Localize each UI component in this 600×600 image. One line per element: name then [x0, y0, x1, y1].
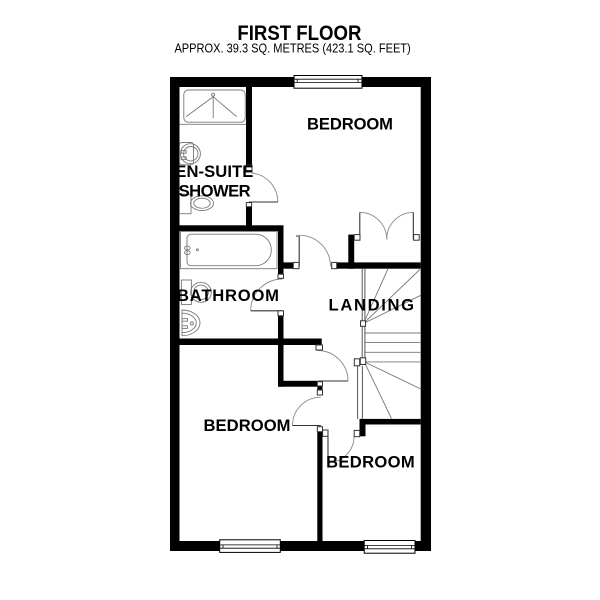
svg-text:SHOWER: SHOWER [179, 181, 251, 200]
svg-text:APPROX. 39.3 SQ. METRES (423.1: APPROX. 39.3 SQ. METRES (423.1 SQ. FEET) [174, 41, 410, 55]
svg-text:EN-SUITE: EN-SUITE [175, 162, 253, 181]
svg-text:LANDING: LANDING [329, 296, 415, 315]
svg-text:BEDROOM: BEDROOM [326, 452, 415, 471]
svg-text:BATHROOM: BATHROOM [177, 286, 279, 305]
svg-text:BEDROOM: BEDROOM [307, 114, 393, 133]
svg-text:BEDROOM: BEDROOM [204, 416, 291, 435]
